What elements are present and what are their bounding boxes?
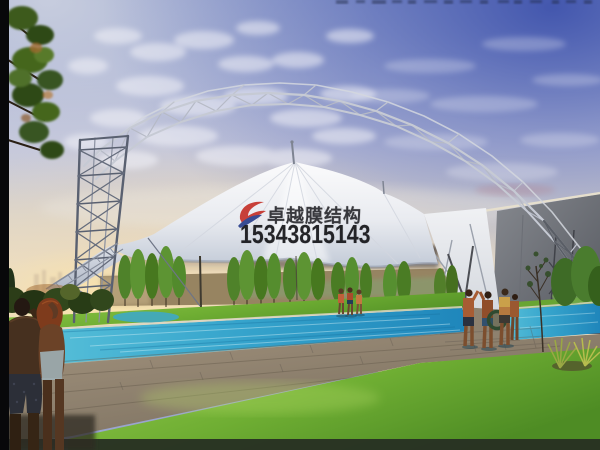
- left-black-border: [0, 0, 9, 450]
- scene-illustration: [0, 0, 600, 450]
- rendering-canvas: 卓越膜结构 15343815143: [0, 0, 600, 450]
- pond-inlet: [113, 312, 179, 323]
- foreground-couple: [7, 298, 65, 450]
